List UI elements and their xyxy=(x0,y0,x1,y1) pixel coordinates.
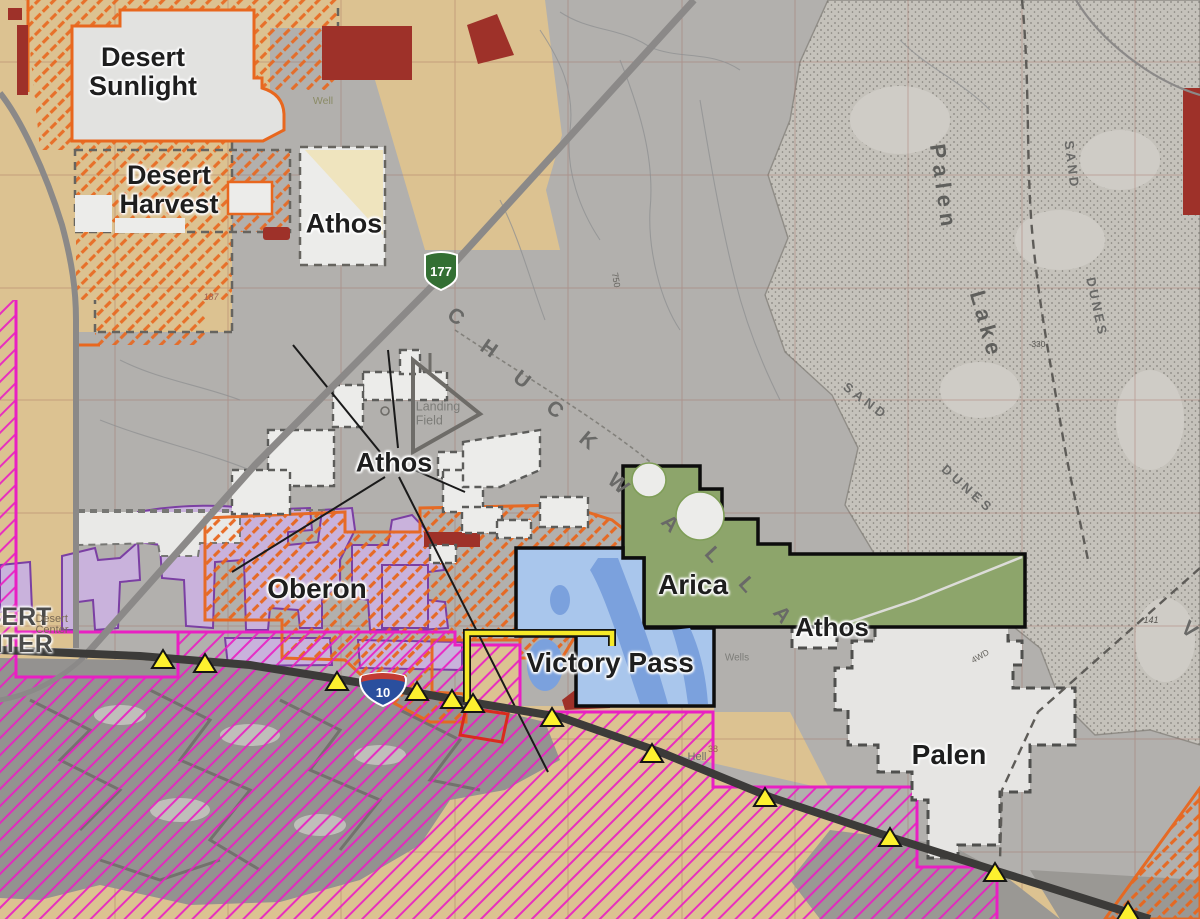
label-well: Well xyxy=(313,95,333,107)
label-athos-east: Athos xyxy=(795,613,869,641)
svg-text:10: 10 xyxy=(376,685,390,700)
map-canvas[interactable]: 177 10 DesertSunlight DesertHarvest Atho… xyxy=(0,0,1200,919)
label-desert-harvest: DesertHarvest xyxy=(119,161,218,219)
label-athos-central: Athos xyxy=(356,448,433,477)
label-desert-sunlight: DesertSunlight xyxy=(89,43,197,101)
label-elev330: -330 xyxy=(1028,339,1045,349)
label-victory-pass: Victory Pass xyxy=(526,648,694,678)
label-arica: Arica xyxy=(658,570,728,600)
label-sec141: 141 xyxy=(1143,615,1158,625)
label-athos-north: Athos xyxy=(306,209,383,238)
label-landing-field: Landing Field xyxy=(416,400,461,428)
label-wells: Wells xyxy=(725,653,749,664)
athos-north-parcel xyxy=(300,147,385,265)
map-graphics: 177 10 xyxy=(0,0,1200,919)
label-palen: Palen xyxy=(912,740,987,770)
label-sec38: 38 xyxy=(708,744,718,754)
svg-text:177: 177 xyxy=(430,264,452,279)
label-desert-center-small: Desert Center xyxy=(35,614,68,636)
highway-177-shield: 177 xyxy=(425,252,457,290)
label-sec187: 187 xyxy=(203,292,218,302)
label-oberon: Oberon xyxy=(267,574,367,604)
label-hell: Hell xyxy=(688,751,707,763)
